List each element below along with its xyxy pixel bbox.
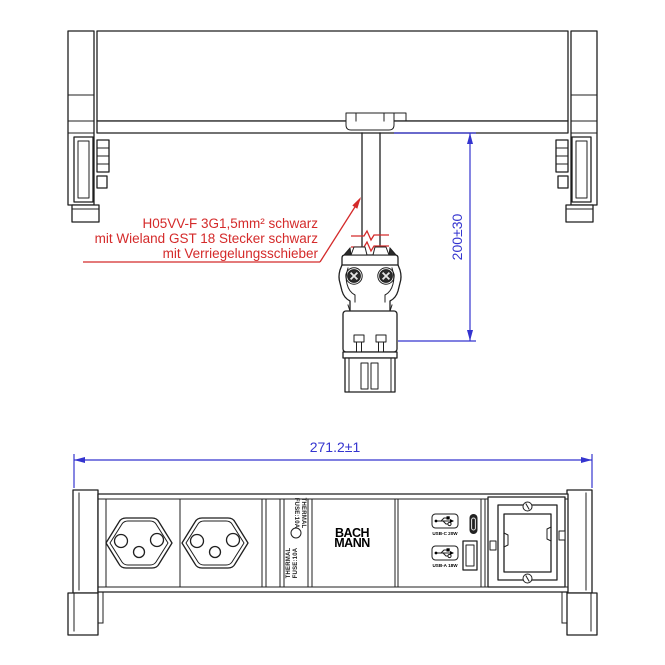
cable-break-symbol [351, 231, 389, 240]
usb-c-label: USB-C 20W [432, 531, 458, 536]
cable-note: H05VV-F 3G1,5mm² schwarz mit Wieland GST… [83, 197, 361, 262]
unit-body-side [97, 31, 568, 121]
end-cap-left [73, 490, 98, 593]
cable-note-line3: mit Verriegelungsschieber [163, 246, 319, 261]
dimension-value-horizontal: 271.2±1 [310, 439, 361, 455]
plug-latch-tab [351, 247, 367, 255]
usb-a-label: USB-A 18W [432, 563, 458, 568]
thermal-fuse-label-mirrored [293, 498, 306, 529]
plug-pin [376, 335, 386, 342]
cable-note-line2: mit Wieland GST 18 Stecker schwarz [95, 231, 319, 246]
screw-icon [346, 268, 362, 284]
support-leg-right [562, 593, 597, 635]
brand-line2: MANN [334, 536, 370, 550]
plug-latch-tab [373, 247, 389, 255]
mounting-screw [523, 574, 532, 583]
cable-note-line1: H05VV-F 3G1,5mm² schwarz [142, 216, 318, 231]
module-opening [504, 514, 551, 572]
thermal-fuse-label: THERMAL [286, 548, 292, 579]
bottom-view: 271.2±1 [68, 439, 597, 635]
usb-c-port [470, 514, 478, 534]
top-view: H05VV-F 3G1,5mm² schwarz mit Wieland GST… [68, 31, 597, 392]
plug-body [343, 311, 397, 352]
drawing-canvas: H05VV-F 3G1,5mm² schwarz mit Wieland GST… [0, 0, 665, 665]
mains-cable [351, 133, 389, 251]
technical-drawing: H05VV-F 3G1,5mm² schwarz mit Wieland GST… [0, 0, 665, 665]
gst18-plug [339, 247, 401, 392]
screw-icon [378, 268, 394, 284]
plug-pin [354, 335, 364, 342]
support-leg-left [68, 593, 103, 635]
plug-lower-housing [345, 358, 395, 392]
end-cap-right [567, 490, 592, 593]
cable-length-dimension: 200±30 [394, 133, 476, 341]
custom-module-frame [488, 497, 565, 587]
width-dimension: 271.2±1 [74, 439, 592, 488]
brand-logo: BACH MANN [334, 526, 370, 550]
clamp-foot-right [566, 205, 593, 222]
dimension-value-vertical: 200±30 [449, 213, 465, 260]
leader-arrow [352, 197, 361, 209]
clamp-foot-left [72, 205, 99, 222]
unit-bottom-rail [97, 121, 568, 133]
mounting-screw [523, 502, 532, 511]
thermal-fuse-label: FUSE:10A [293, 547, 299, 578]
